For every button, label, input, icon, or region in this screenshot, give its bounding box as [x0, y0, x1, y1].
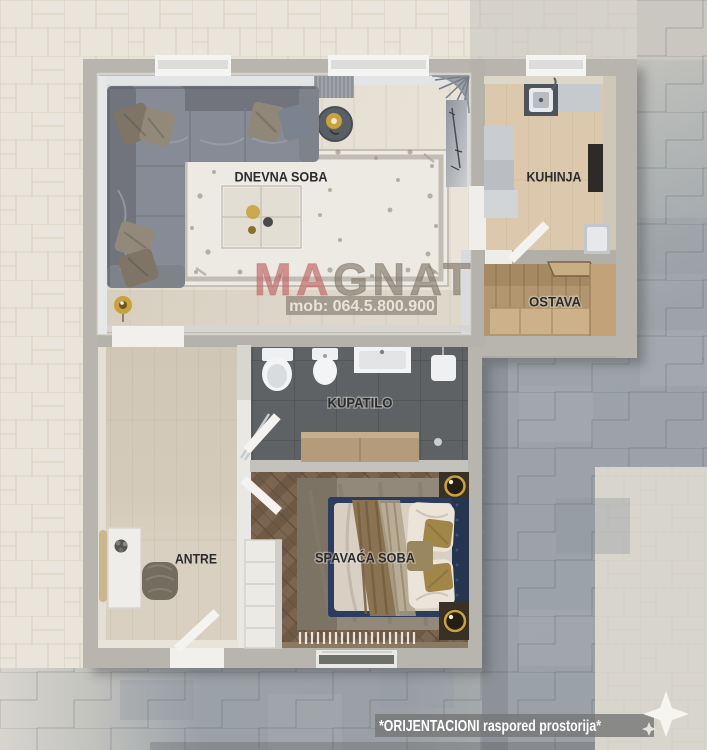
svg-text:KUHINJA: KUHINJA: [527, 169, 582, 185]
svg-text:DNEVNA SOBA: DNEVNA SOBA: [235, 169, 328, 185]
svg-text:SPAVAĆA SOBA: SPAVAĆA SOBA: [315, 549, 415, 566]
svg-text:KUPATILO: KUPATILO: [328, 395, 393, 411]
svg-text:*ORIJENTACIONI raspored prosto: *ORIJENTACIONI raspored prostorija*: [379, 718, 602, 735]
svg-text:OSTAVA: OSTAVA: [529, 294, 581, 310]
svg-text:ANTRE: ANTRE: [175, 551, 217, 567]
svg-text:mob: 064.5.800.900: mob: 064.5.800.900: [289, 298, 435, 315]
